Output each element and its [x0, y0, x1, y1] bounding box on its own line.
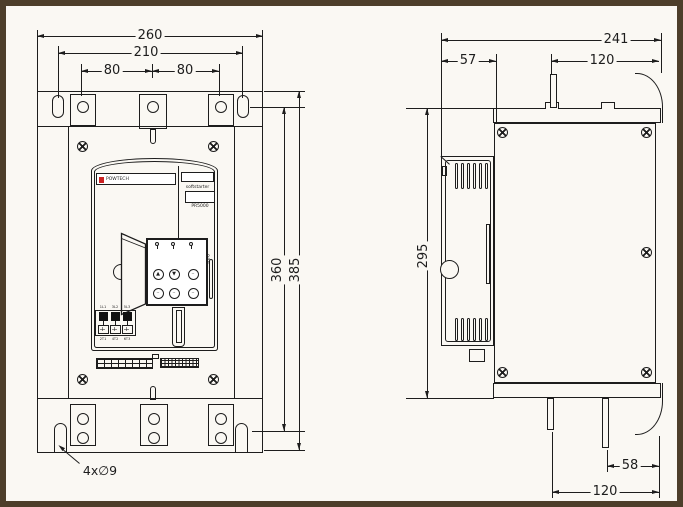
arrowhead [236, 51, 243, 55]
dim-label-241: 241 [602, 33, 631, 47]
extension-line [661, 33, 662, 73]
dim-label-58: 58 [620, 459, 641, 473]
arrowhead [441, 59, 448, 63]
extension-line [607, 450, 608, 472]
door-latch [442, 166, 447, 176]
dim-label-80-left: 80 [102, 64, 123, 78]
rail-notch [601, 102, 615, 109]
vent-slat [455, 318, 458, 341]
vent-slat [461, 318, 464, 341]
arrowhead [212, 69, 219, 73]
dim-label-210: 210 [132, 46, 161, 60]
arrowhead [607, 464, 614, 468]
arrowhead [552, 490, 559, 494]
arrowhead [425, 391, 429, 398]
arrowhead [256, 34, 263, 38]
vent-slat [479, 318, 482, 341]
dim-label-120-bottom: 120 [591, 485, 620, 499]
door-foot-tab [469, 349, 485, 362]
busbar-bottom-left [547, 398, 554, 430]
arrowhead [282, 107, 286, 114]
vent-slat [455, 163, 458, 189]
vent-slat [467, 163, 470, 189]
arrowhead [441, 38, 448, 42]
door-slot [486, 224, 490, 284]
dim-label-120-top: 120 [588, 54, 617, 68]
arrowhead [152, 69, 159, 73]
bottom-rail [493, 383, 661, 398]
arrowhead [489, 59, 496, 63]
screw-icon [641, 247, 652, 258]
screw-icon [641, 367, 652, 378]
vent-slat [467, 318, 470, 341]
dimensional-drawing: 260 210 80 80 360 385 [0, 0, 683, 507]
vent-slat [473, 318, 476, 341]
arrowhead [297, 443, 301, 450]
arrowhead [652, 490, 659, 494]
side-view: 241 57 120 295 [6, 6, 677, 501]
arrowhead [652, 464, 659, 468]
arrowhead [551, 59, 558, 63]
vent-grille-bottom [455, 318, 488, 341]
arrowhead [282, 424, 286, 431]
dim-label-80-right: 80 [175, 64, 196, 78]
extension-line [551, 54, 552, 74]
side-panel [494, 123, 656, 383]
busbar-top [550, 74, 557, 108]
arrowhead [425, 108, 429, 115]
vent-slat [461, 163, 464, 189]
arrowhead [145, 69, 152, 73]
dim-label-57: 57 [458, 54, 479, 68]
extension-line [659, 436, 660, 498]
screw-icon [497, 367, 508, 378]
vent-slat [485, 318, 488, 341]
dim-label-260: 260 [136, 29, 165, 43]
arrowhead [654, 38, 661, 42]
extension-line [406, 108, 494, 109]
extension-line [441, 33, 442, 156]
dim-label-295: 295 [417, 242, 431, 271]
arrowhead [58, 51, 65, 55]
arrowhead [652, 59, 659, 63]
extension-line [406, 398, 494, 399]
door-knob [440, 260, 459, 279]
dim-label-385: 385 [289, 256, 303, 285]
arrowhead [37, 34, 44, 38]
vent-slat [473, 163, 476, 189]
dim-label-360: 360 [271, 256, 285, 285]
busbar-bottom-right [602, 398, 609, 448]
arrowhead [297, 91, 301, 98]
top-rail [493, 108, 661, 123]
vent-slat [485, 163, 488, 189]
screw-icon [641, 127, 652, 138]
extension-line [552, 432, 553, 498]
screw-icon [497, 127, 508, 138]
vent-slat [479, 163, 482, 189]
vent-grille-top [455, 163, 488, 189]
arrowhead [81, 69, 88, 73]
hole-note-label: 4x∅9 [81, 464, 119, 478]
